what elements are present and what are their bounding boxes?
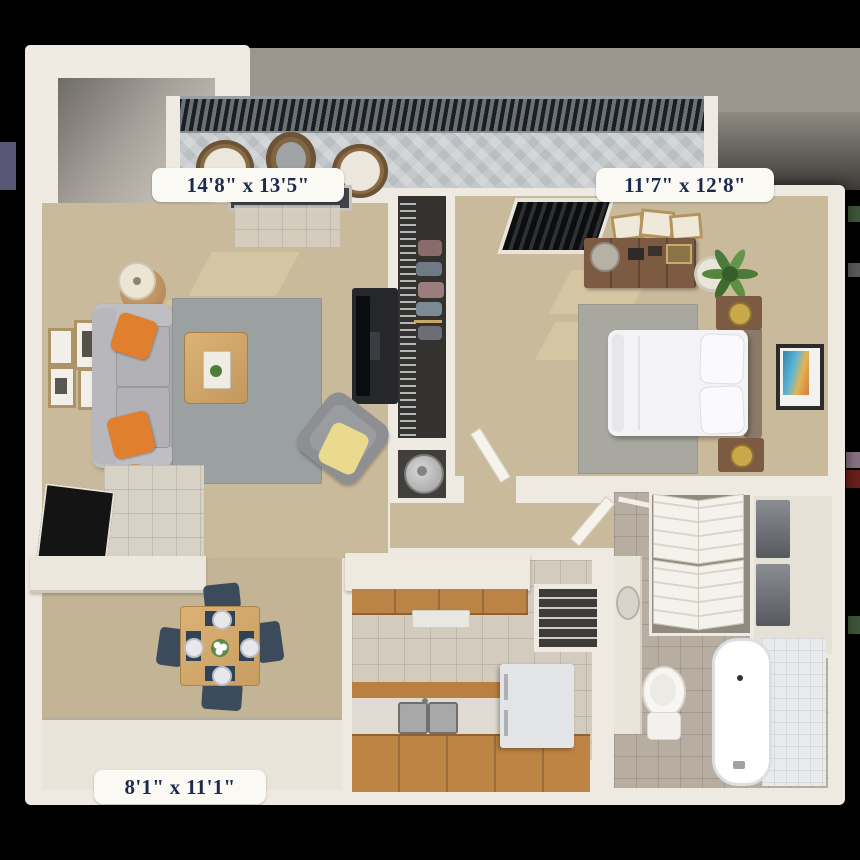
nightstand xyxy=(718,438,764,472)
range-hood xyxy=(412,610,470,628)
kitchen-sink-basin xyxy=(428,702,458,734)
edge-artifact-green2 xyxy=(848,616,860,634)
art-canvas xyxy=(783,351,809,395)
kitchen-sink-basin xyxy=(398,702,428,734)
refrigerator xyxy=(500,664,574,748)
coffee-table xyxy=(184,332,248,404)
water-heater-closet xyxy=(398,450,446,498)
tv-stand-bracket xyxy=(370,332,380,360)
bed xyxy=(608,330,748,436)
edge-artifact-purple xyxy=(0,142,16,190)
hanging-clothes xyxy=(416,302,442,316)
bifold-door-panel xyxy=(653,560,699,630)
living-room-dimensions-label: 14'8" x 13'5" xyxy=(152,168,344,202)
gold-lamp xyxy=(730,444,754,468)
stacked-unit xyxy=(756,564,790,626)
dining-table xyxy=(180,606,260,686)
wall-art-frame xyxy=(48,366,76,408)
sofa xyxy=(92,304,172,468)
edge-artifact-mauve xyxy=(846,452,860,468)
hanger-rod xyxy=(414,320,442,323)
dresser-tray xyxy=(666,244,692,264)
edge-artifact-green1 xyxy=(848,206,860,222)
dresser-decor-box xyxy=(648,246,662,256)
tv-console xyxy=(352,288,398,404)
art-smudge xyxy=(82,331,92,357)
bathtub xyxy=(712,638,772,786)
bed-pillow xyxy=(699,385,745,435)
dresser-lamp xyxy=(590,242,620,272)
bedroom-wall-art xyxy=(776,344,824,410)
hanging-clothes xyxy=(416,262,442,276)
dresser xyxy=(584,238,696,288)
kitchen-faucet xyxy=(422,698,428,704)
bedroom-door-threshold xyxy=(464,476,516,506)
nightstand xyxy=(716,296,762,330)
edge-artifact-gray xyxy=(848,263,860,277)
vanity-sink xyxy=(616,586,640,620)
bifold-door-panel xyxy=(653,494,699,564)
toilet-tank xyxy=(647,712,681,740)
dinner-plate xyxy=(184,638,204,658)
dinner-plate xyxy=(212,610,232,630)
tv-screen xyxy=(356,296,370,396)
stacked-unit xyxy=(756,500,790,558)
tub-drain xyxy=(737,675,743,681)
wardrobe-closet xyxy=(398,196,446,438)
bed-pillow xyxy=(699,333,745,385)
duvet-crease xyxy=(638,336,640,430)
dinner-plate xyxy=(240,638,260,658)
duvet-fold xyxy=(612,334,624,432)
bedroom-dimensions-label: 11'7" x 12'8" xyxy=(596,168,774,202)
hanging-clothes xyxy=(418,282,444,298)
toilet-seat xyxy=(650,674,676,706)
hanging-clothes xyxy=(418,240,442,256)
bifold-door-panel xyxy=(698,494,744,564)
floor-plan-render: 14'8" x 13'5" 11'7" x 12'8" 8'1" x 11'1" xyxy=(0,0,860,860)
edge-artifact-red xyxy=(846,470,860,488)
hanging-clothes xyxy=(418,326,442,340)
water-heater-cap xyxy=(417,466,427,476)
dresser-decor-box xyxy=(628,248,644,260)
toilet xyxy=(642,666,684,744)
entry-light-patch xyxy=(234,205,340,247)
bifold-door-panel xyxy=(698,560,744,630)
pantry-shelves xyxy=(534,584,602,652)
balcony-railing xyxy=(178,96,710,133)
refrigerator-handle xyxy=(504,674,508,700)
flower-centerpiece xyxy=(211,639,229,657)
art-smudge xyxy=(55,378,67,394)
lamp-finial xyxy=(133,277,141,285)
table-lamp xyxy=(118,262,156,300)
dinner-plate xyxy=(212,666,232,686)
washer-dryer-closet xyxy=(750,492,836,658)
entry-half-wall xyxy=(30,556,206,593)
tub-faucet xyxy=(733,761,745,769)
plant-center xyxy=(722,266,738,282)
wire-shelving xyxy=(400,198,416,436)
dining-room-dimensions-label: 8'1" x 11'1" xyxy=(94,770,266,804)
refrigerator-handle xyxy=(504,710,508,736)
pass-through-counter xyxy=(345,553,530,591)
table-plant xyxy=(210,365,222,377)
potted-plant xyxy=(698,244,762,304)
gold-lamp xyxy=(728,302,752,326)
bathroom-vanity xyxy=(614,556,642,734)
wall-art-frame xyxy=(48,328,74,366)
bifold-closet xyxy=(649,492,753,636)
entry-tile-floor xyxy=(104,465,204,561)
